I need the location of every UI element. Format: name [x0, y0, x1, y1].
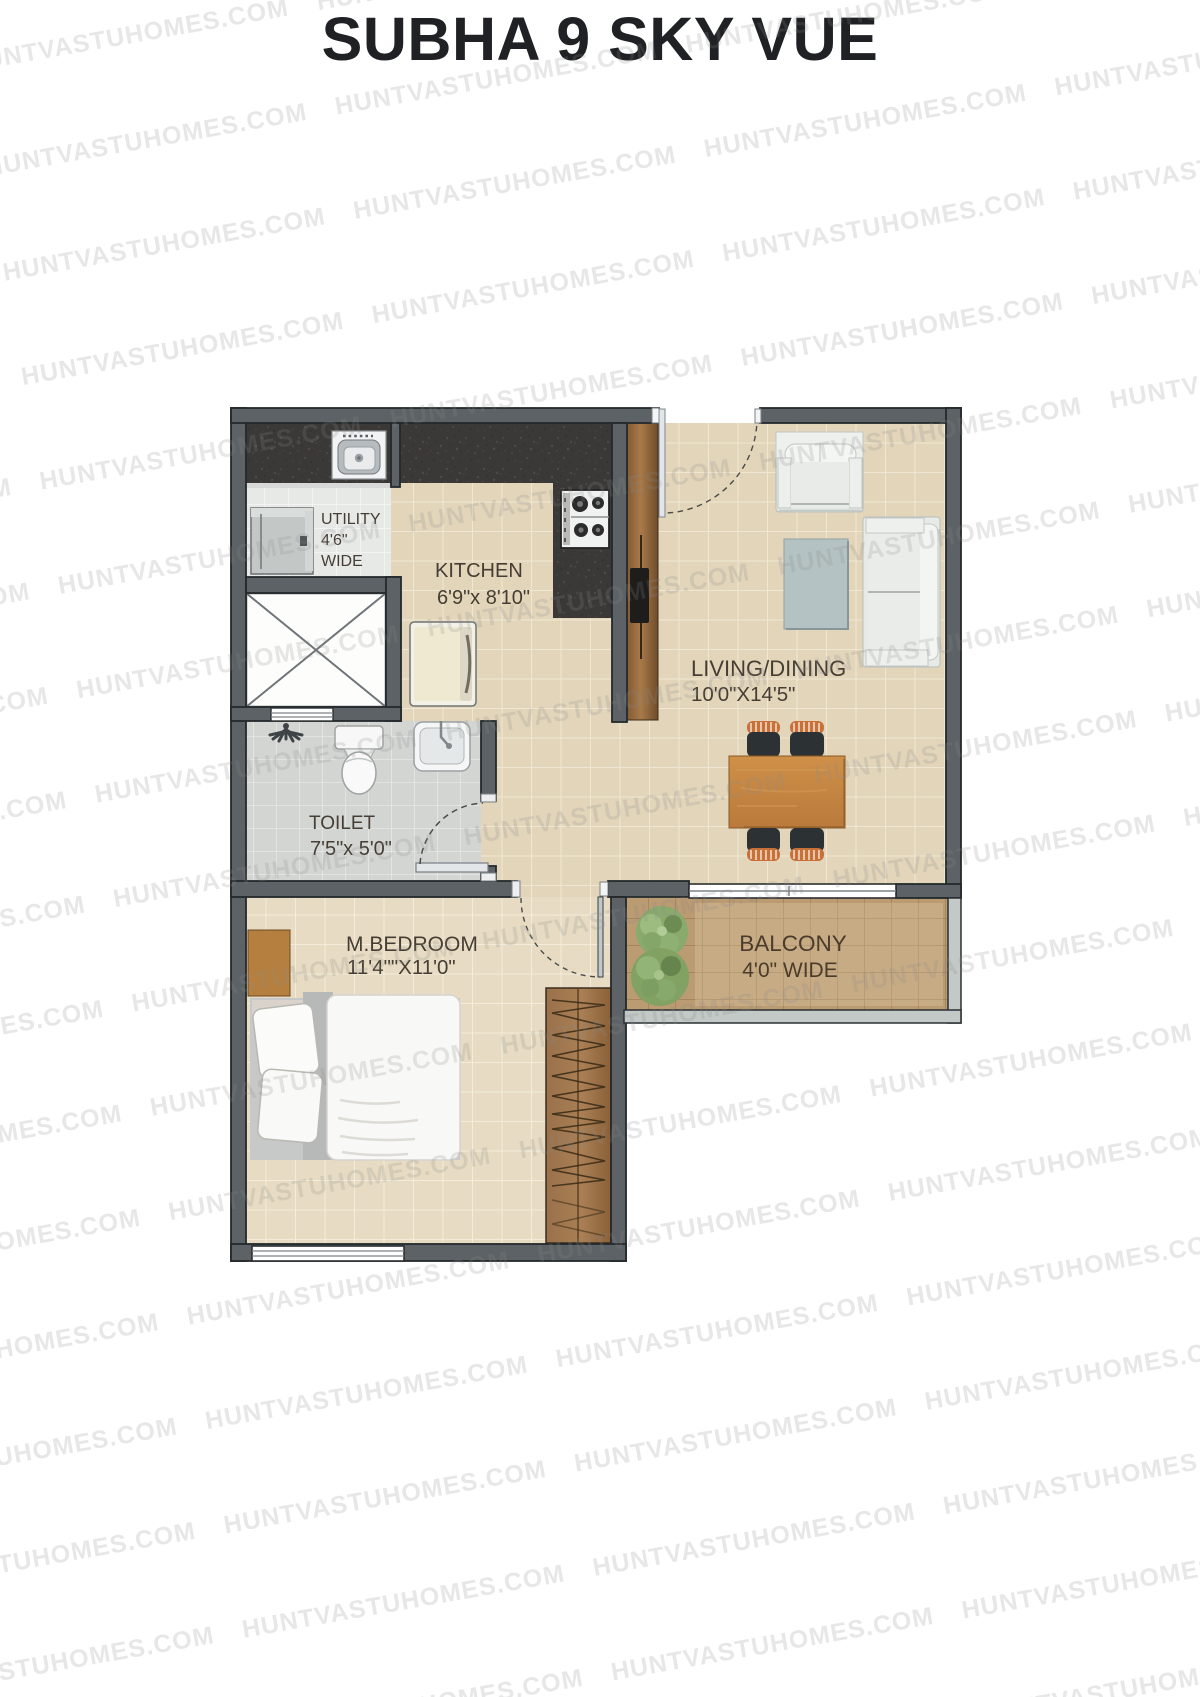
svg-text:WIDE: WIDE: [321, 553, 363, 570]
svg-text:KITCHEN: KITCHEN: [435, 560, 523, 582]
svg-text:4'0" WIDE: 4'0" WIDE: [742, 959, 837, 982]
svg-text:TOILET: TOILET: [309, 813, 376, 834]
svg-text:BALCONY: BALCONY: [739, 931, 847, 956]
